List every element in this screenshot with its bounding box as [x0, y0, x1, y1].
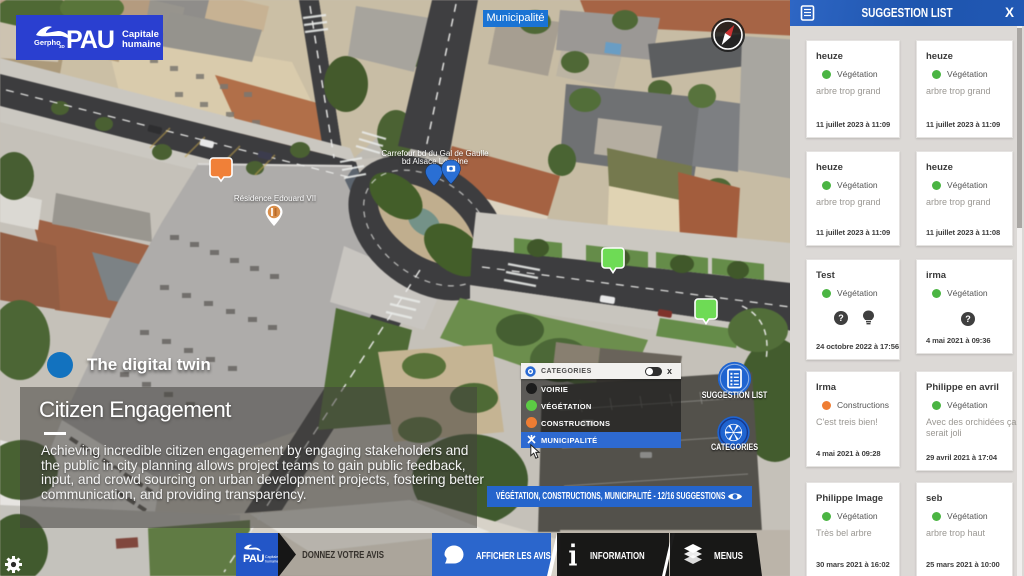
svg-text:?: ? [965, 314, 971, 324]
svg-text:Gerpho: Gerpho [34, 38, 61, 47]
svg-text:PAU: PAU [243, 553, 264, 565]
svg-text:Capitale: Capitale [265, 555, 278, 559]
svg-text:PAU: PAU [66, 26, 114, 54]
svg-text:3D: 3D [59, 44, 66, 49]
svg-text:?: ? [838, 313, 844, 323]
svg-text:humaine: humaine [122, 39, 161, 50]
svg-text:humaine: humaine [265, 560, 278, 564]
